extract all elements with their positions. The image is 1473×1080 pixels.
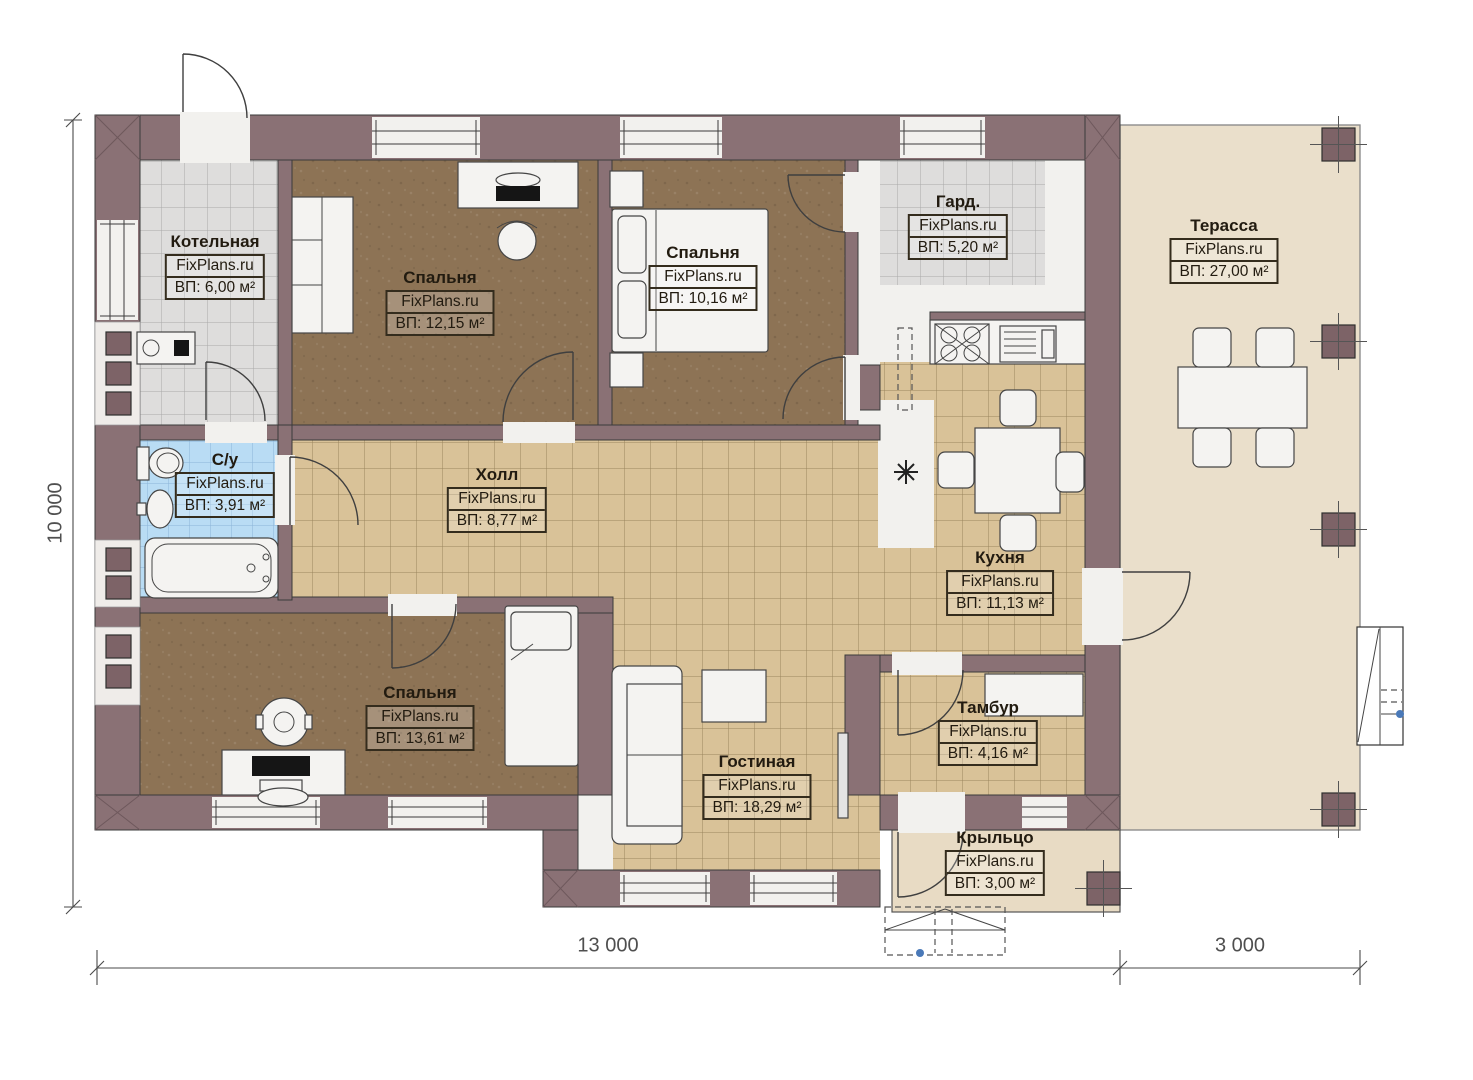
- room-area-hall: ВП: 8,77 м²: [449, 509, 545, 531]
- room-label-bedroom-2: СпальняFixPlans.ruВП: 10,16 м²: [648, 243, 757, 311]
- room-info-box-porch: FixPlans.ruВП: 3,00 м²: [945, 850, 1045, 896]
- room-watermark-hall: FixPlans.ru: [449, 489, 545, 509]
- room-label-bedroom-3: СпальняFixPlans.ruВП: 13,61 м²: [365, 683, 474, 751]
- window-top-1: [372, 117, 480, 158]
- floor-plan-page: КотельнаяFixPlans.ruВП: 6,00 м²СпальняFi…: [0, 0, 1473, 1080]
- room-name-kotelnaya: Котельная: [165, 232, 265, 252]
- room-area-living: ВП: 18,29 м²: [704, 796, 809, 818]
- dimension-bottom-main-text: 13 000: [577, 935, 638, 958]
- window-living-2: [750, 872, 837, 905]
- room-watermark-bedroom-2: FixPlans.ru: [650, 267, 755, 287]
- room-watermark-kotelnaya: FixPlans.ru: [167, 256, 263, 276]
- room-watermark-living: FixPlans.ru: [704, 776, 809, 796]
- room-name-garderob: Гард.: [908, 192, 1008, 212]
- window-living-1: [620, 872, 710, 905]
- room-area-tambur: ВП: 4,16 м²: [940, 742, 1036, 764]
- room-watermark-porch: FixPlans.ru: [947, 852, 1043, 872]
- room-watermark-terrace: FixPlans.ru: [1171, 240, 1276, 260]
- room-watermark-tambur: FixPlans.ru: [940, 722, 1036, 742]
- room-label-kotelnaya: КотельнаяFixPlans.ruВП: 6,00 м²: [165, 232, 265, 300]
- dimension-left-text: 10 000: [45, 482, 68, 543]
- room-watermark-bedroom-3: FixPlans.ru: [367, 707, 472, 727]
- room-label-bedroom-1: СпальняFixPlans.ruВП: 12,15 м²: [385, 268, 494, 336]
- room-name-porch: Крыльцо: [945, 828, 1045, 848]
- room-watermark-garderob: FixPlans.ru: [910, 216, 1006, 236]
- room-area-bedroom-2: ВП: 10,16 м²: [650, 287, 755, 309]
- room-info-box-living: FixPlans.ruВП: 18,29 м²: [702, 774, 811, 820]
- room-label-garderob: Гард.FixPlans.ruВП: 5,20 м²: [908, 192, 1008, 260]
- room-name-kitchen: Кухня: [946, 548, 1054, 568]
- room-info-box-garderob: FixPlans.ruВП: 5,20 м²: [908, 214, 1008, 260]
- window-bottom-2: [388, 797, 487, 828]
- room-area-bedroom-3: ВП: 13,61 м²: [367, 727, 472, 749]
- room-name-tambur: Тамбур: [938, 698, 1038, 718]
- room-info-box-kitchen: FixPlans.ruВП: 11,13 м²: [946, 570, 1054, 616]
- room-area-kotelnaya: ВП: 6,00 м²: [167, 276, 263, 298]
- room-info-box-kotelnaya: FixPlans.ruВП: 6,00 м²: [165, 254, 265, 300]
- room-name-bedroom-3: Спальня: [365, 683, 474, 703]
- room-area-bathroom: ВП: 3,91 м²: [177, 494, 273, 516]
- room-watermark-kitchen: FixPlans.ru: [948, 572, 1052, 592]
- room-area-garderob: ВП: 5,20 м²: [910, 236, 1006, 258]
- room-name-hall: Холл: [447, 465, 547, 485]
- room-label-bathroom: С/уFixPlans.ruВП: 3,91 м²: [175, 450, 275, 518]
- room-watermark-bedroom-1: FixPlans.ru: [387, 292, 492, 312]
- floor-plan-drawing: [0, 0, 1473, 1080]
- room-label-kitchen: КухняFixPlans.ruВП: 11,13 м²: [946, 548, 1054, 616]
- room-info-box-tambur: FixPlans.ruВП: 4,16 м²: [938, 720, 1038, 766]
- room-area-terrace: ВП: 27,00 м²: [1171, 260, 1276, 282]
- room-name-bedroom-2: Спальня: [648, 243, 757, 263]
- room-label-living: ГостинаяFixPlans.ruВП: 18,29 м²: [702, 752, 811, 820]
- room-name-terrace: Терасса: [1169, 216, 1278, 236]
- room-area-porch: ВП: 3,00 м²: [947, 872, 1043, 894]
- room-area-bedroom-1: ВП: 12,15 м²: [387, 312, 492, 334]
- room-info-box-bedroom-1: FixPlans.ruВП: 12,15 м²: [385, 290, 494, 336]
- room-label-porch: КрыльцоFixPlans.ruВП: 3,00 м²: [945, 828, 1045, 896]
- room-label-hall: ХоллFixPlans.ruВП: 8,77 м²: [447, 465, 547, 533]
- window-left: [97, 220, 138, 320]
- room-label-terrace: ТерассаFixPlans.ruВП: 27,00 м²: [1169, 216, 1278, 284]
- dimension-bottom-terrace-text: 3 000: [1215, 935, 1265, 958]
- floor-hall: [292, 440, 880, 600]
- room-watermark-bathroom: FixPlans.ru: [177, 474, 273, 494]
- room-info-box-bathroom: FixPlans.ruВП: 3,91 м²: [175, 472, 275, 518]
- room-info-box-hall: FixPlans.ruВП: 8,77 м²: [447, 487, 547, 533]
- door-entrance-boiler: [183, 54, 247, 118]
- window-top-3: [900, 117, 985, 158]
- room-name-bedroom-1: Спальня: [385, 268, 494, 288]
- room-name-living: Гостиная: [702, 752, 811, 772]
- furniture-boiler: [137, 332, 195, 364]
- room-label-tambur: ТамбурFixPlans.ruВП: 4,16 м²: [938, 698, 1038, 766]
- terrace-stairs: [1357, 627, 1404, 745]
- room-info-box-terrace: FixPlans.ruВП: 27,00 м²: [1169, 238, 1278, 284]
- porch-steps: [885, 907, 1005, 957]
- room-info-box-bedroom-3: FixPlans.ruВП: 13,61 м²: [365, 705, 474, 751]
- window-tambur: [1022, 797, 1067, 828]
- room-area-kitchen: ВП: 11,13 м²: [948, 592, 1052, 614]
- room-info-box-bedroom-2: FixPlans.ruВП: 10,16 м²: [648, 265, 757, 311]
- room-name-bathroom: С/у: [175, 450, 275, 470]
- window-top-2: [620, 117, 722, 158]
